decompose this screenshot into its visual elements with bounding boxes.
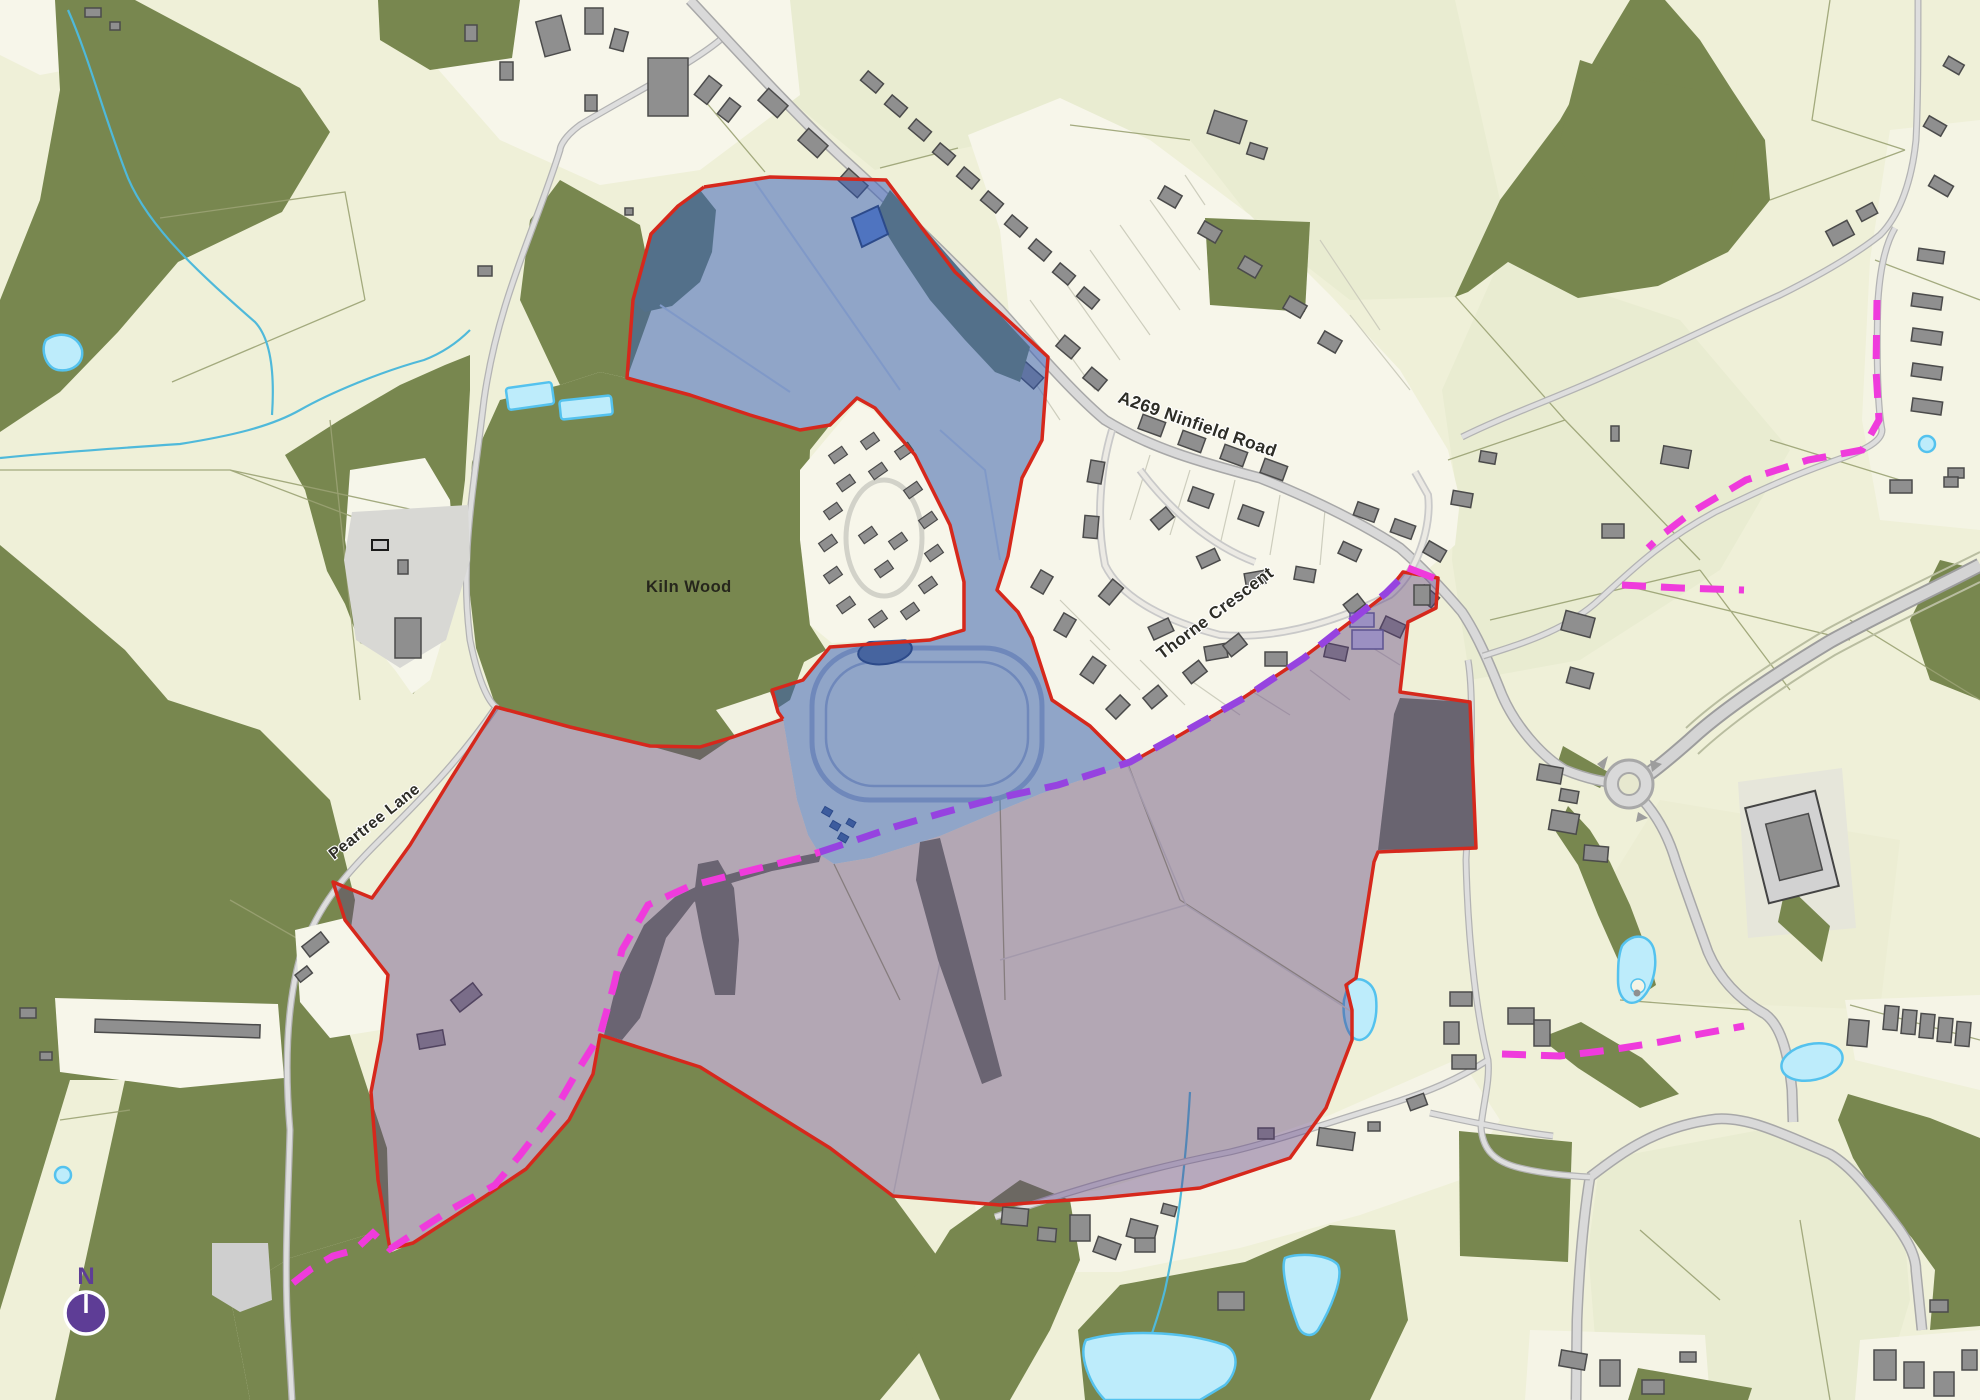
- svg-text:N: N: [77, 1263, 94, 1290]
- svg-text:Kiln Wood: Kiln Wood: [646, 578, 732, 596]
